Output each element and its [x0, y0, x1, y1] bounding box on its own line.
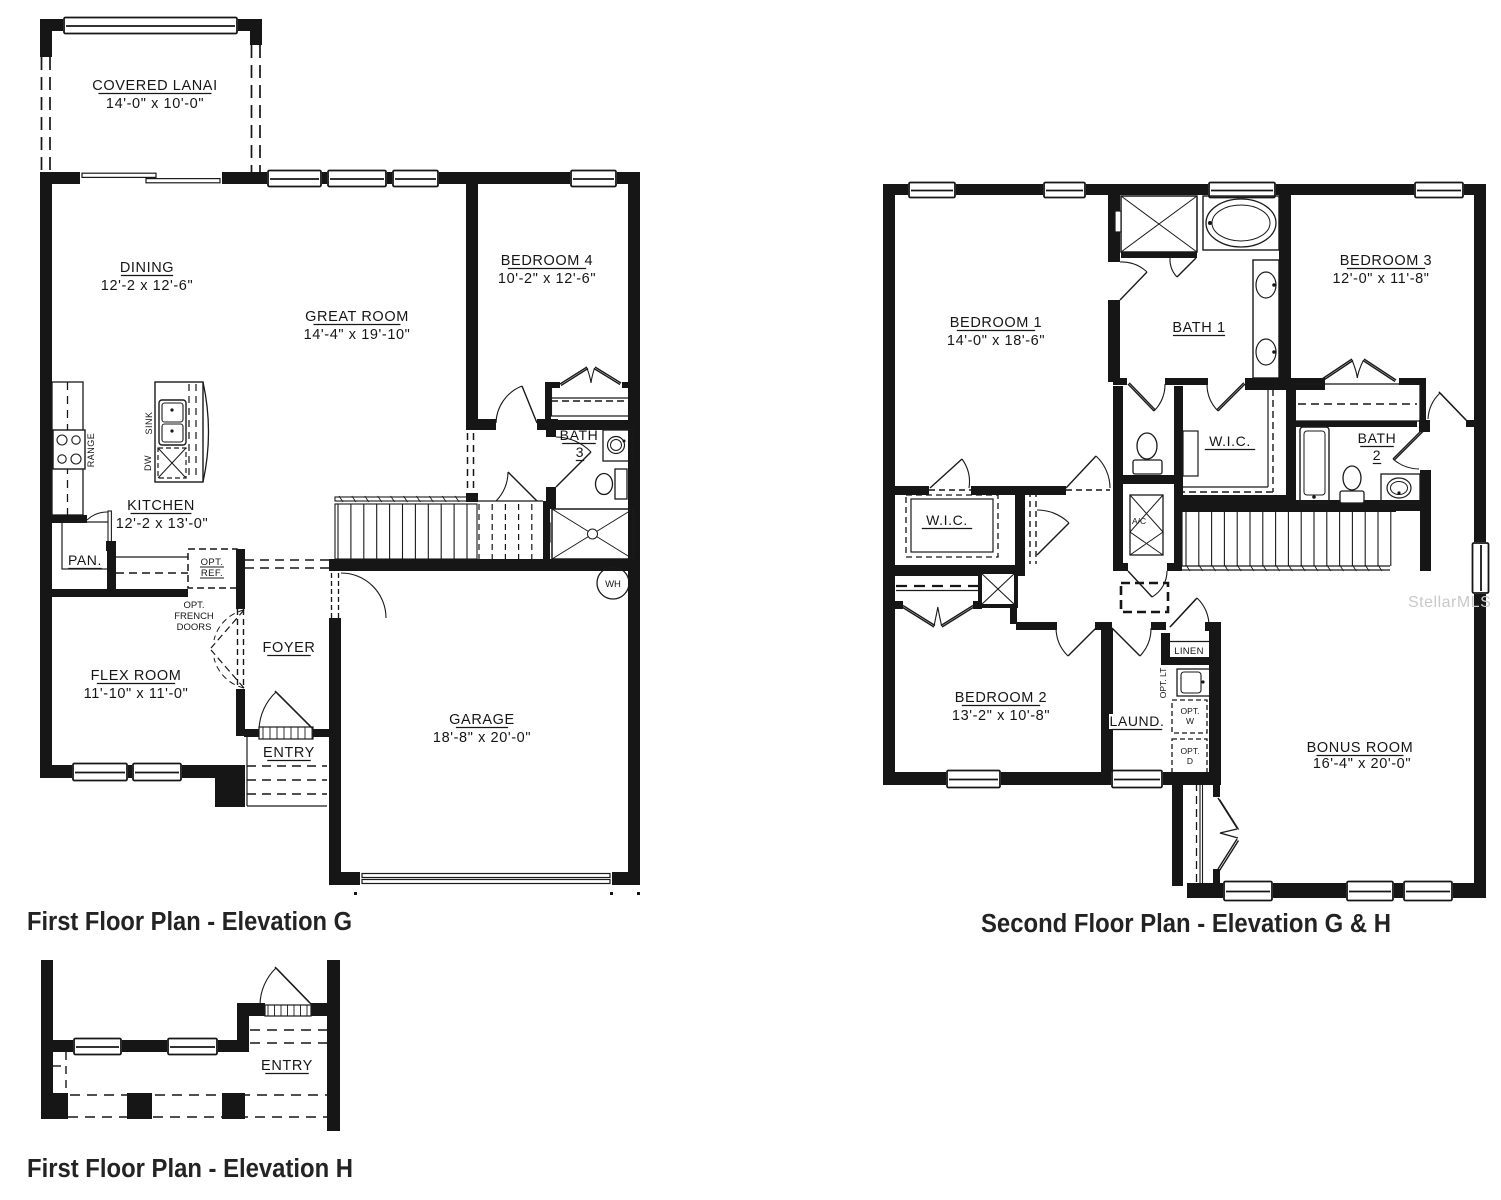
svg-text:BATH 1: BATH 1 — [1172, 320, 1225, 336]
svg-text:Second Floor Plan - Elevation: Second Floor Plan - Elevation G & H — [981, 910, 1391, 938]
svg-text:DINING: DINING — [120, 260, 174, 276]
svg-text:16'-4" x 20'-0": 16'-4" x 20'-0" — [1313, 756, 1411, 772]
svg-text:BEDROOM 1: BEDROOM 1 — [950, 315, 1042, 331]
svg-text:2: 2 — [1373, 447, 1381, 463]
svg-text:First Floor Plan - Elevation G: First Floor Plan - Elevation G — [27, 908, 352, 936]
svg-text:COVERED LANAI: COVERED LANAI — [92, 78, 217, 94]
svg-text:LAUND.: LAUND. — [1110, 713, 1165, 729]
svg-text:KITCHEN: KITCHEN — [127, 498, 195, 514]
svg-text:RANGE: RANGE — [86, 433, 96, 468]
svg-text:OPT. LT: OPT. LT — [1158, 668, 1168, 699]
svg-text:BATH: BATH — [1358, 430, 1397, 446]
svg-text:OPT.: OPT. — [1181, 706, 1200, 716]
svg-text:FRENCH: FRENCH — [174, 611, 214, 622]
svg-text:W.I.C.: W.I.C. — [1209, 433, 1251, 449]
svg-text:PAN.: PAN. — [68, 552, 102, 568]
svg-text:BEDROOM 4: BEDROOM 4 — [501, 253, 593, 269]
svg-text:FOYER: FOYER — [263, 640, 316, 656]
svg-text:OPT.: OPT. — [201, 557, 224, 568]
svg-text:W: W — [1186, 716, 1194, 726]
svg-text:FLEX ROOM: FLEX ROOM — [91, 668, 182, 684]
svg-text:BEDROOM 2: BEDROOM 2 — [955, 690, 1047, 706]
svg-text:12'-0" x 11'-8": 12'-0" x 11'-8" — [1332, 271, 1429, 287]
svg-text:A/C: A/C — [1132, 516, 1146, 526]
svg-text:14'-0" x 18'-6": 14'-0" x 18'-6" — [947, 333, 1045, 349]
svg-text:WH: WH — [605, 579, 621, 590]
svg-text:3: 3 — [576, 444, 584, 460]
svg-text:D: D — [1187, 756, 1193, 766]
svg-text:LINEN: LINEN — [1174, 646, 1203, 657]
svg-text:GARAGE: GARAGE — [449, 712, 515, 728]
svg-text:OPT.: OPT. — [1181, 746, 1200, 756]
svg-text:SINK: SINK — [144, 411, 154, 434]
svg-text:REF.: REF. — [201, 568, 223, 579]
svg-text:ENTRY: ENTRY — [263, 745, 315, 761]
svg-text:12'-2 x 12'-6": 12'-2 x 12'-6" — [101, 278, 193, 294]
svg-text:ENTRY: ENTRY — [261, 1058, 313, 1074]
svg-text:BEDROOM 3: BEDROOM 3 — [1340, 253, 1432, 269]
svg-text:14'-0" x 10'-0": 14'-0" x 10'-0" — [106, 96, 204, 112]
svg-text:StellarMLS: StellarMLS — [1408, 594, 1491, 611]
svg-text:W.I.C.: W.I.C. — [926, 512, 968, 528]
svg-text:DOORS: DOORS — [177, 622, 212, 633]
svg-text:11'-10" x 11'-0": 11'-10" x 11'-0" — [84, 686, 189, 702]
svg-text:14'-4" x 19'-10": 14'-4" x 19'-10" — [304, 327, 411, 343]
svg-text:BONUS ROOM: BONUS ROOM — [1307, 740, 1414, 756]
svg-text:12'-2 x 13'-0": 12'-2 x 13'-0" — [116, 516, 208, 532]
svg-text:OPT.: OPT. — [183, 600, 204, 611]
svg-text:13'-2" x 10'-8": 13'-2" x 10'-8" — [952, 708, 1050, 724]
svg-text:DW: DW — [143, 455, 153, 471]
svg-text:BATH: BATH — [560, 427, 599, 443]
svg-text:GREAT ROOM: GREAT ROOM — [305, 309, 409, 325]
svg-text:18'-8" x 20'-0": 18'-8" x 20'-0" — [433, 730, 531, 746]
svg-text:10'-2" x 12'-6": 10'-2" x 12'-6" — [498, 271, 596, 287]
svg-text:First Floor Plan - Elevation H: First Floor Plan - Elevation H — [27, 1155, 353, 1183]
